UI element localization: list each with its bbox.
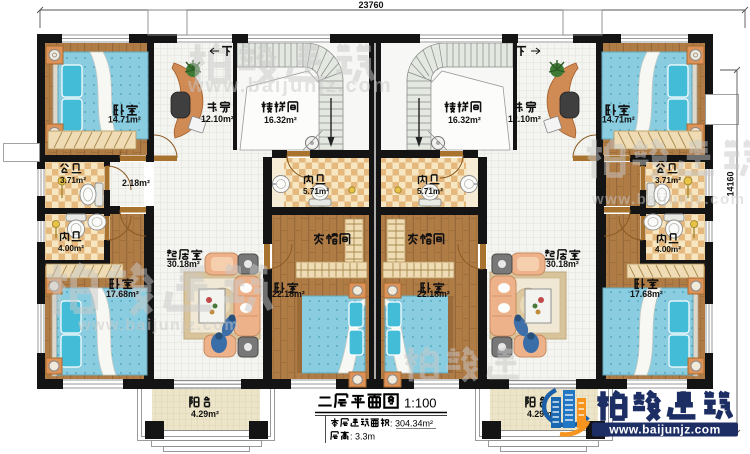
svg-text:5.71m²: 5.71m² bbox=[303, 187, 329, 196]
svg-text:16.32m²: 16.32m² bbox=[448, 115, 481, 125]
svg-text:4.00m²: 4.00m² bbox=[58, 244, 84, 253]
svg-text:30.18m²: 30.18m² bbox=[167, 259, 200, 269]
svg-text:23760: 23760 bbox=[358, 0, 383, 10]
svg-text:: 304.34m²: : 304.34m² bbox=[390, 419, 433, 429]
svg-text:3.71m²: 3.71m² bbox=[60, 176, 86, 185]
svg-text:1:100: 1:100 bbox=[404, 396, 437, 411]
svg-text:14.71m²: 14.71m² bbox=[602, 115, 635, 125]
svg-text:17.68m²: 17.68m² bbox=[106, 289, 139, 299]
svg-text:www.baijunjz.com: www.baijunjz.com bbox=[591, 191, 745, 208]
svg-text:17.68m²: 17.68m² bbox=[630, 289, 663, 299]
svg-text:4.29m²: 4.29m² bbox=[191, 409, 219, 419]
svg-text:3.71m²: 3.71m² bbox=[655, 176, 681, 185]
svg-text:12.10m²: 12.10m² bbox=[201, 114, 234, 124]
svg-text:5.71m²: 5.71m² bbox=[417, 187, 443, 196]
svg-text:22.18m²: 22.18m² bbox=[417, 289, 450, 299]
svg-text:www.baijunjz.com: www.baijunjz.com bbox=[187, 75, 393, 97]
svg-text:30.18m²: 30.18m² bbox=[546, 259, 579, 269]
svg-text:www.baijunjz.com: www.baijunjz.com bbox=[608, 423, 721, 437]
svg-text:: 3.3m: : 3.3m bbox=[350, 432, 375, 442]
svg-text:www.baijunjz.com: www.baijunjz.com bbox=[77, 317, 240, 334]
svg-text:14.71m²: 14.71m² bbox=[108, 115, 141, 125]
svg-text:2.18m²: 2.18m² bbox=[122, 178, 150, 188]
svg-text:22.18m²: 22.18m² bbox=[272, 289, 305, 299]
svg-text:4.00m²: 4.00m² bbox=[655, 245, 681, 254]
svg-text:16.32m²: 16.32m² bbox=[264, 115, 297, 125]
svg-text:12.10m²: 12.10m² bbox=[508, 114, 541, 124]
